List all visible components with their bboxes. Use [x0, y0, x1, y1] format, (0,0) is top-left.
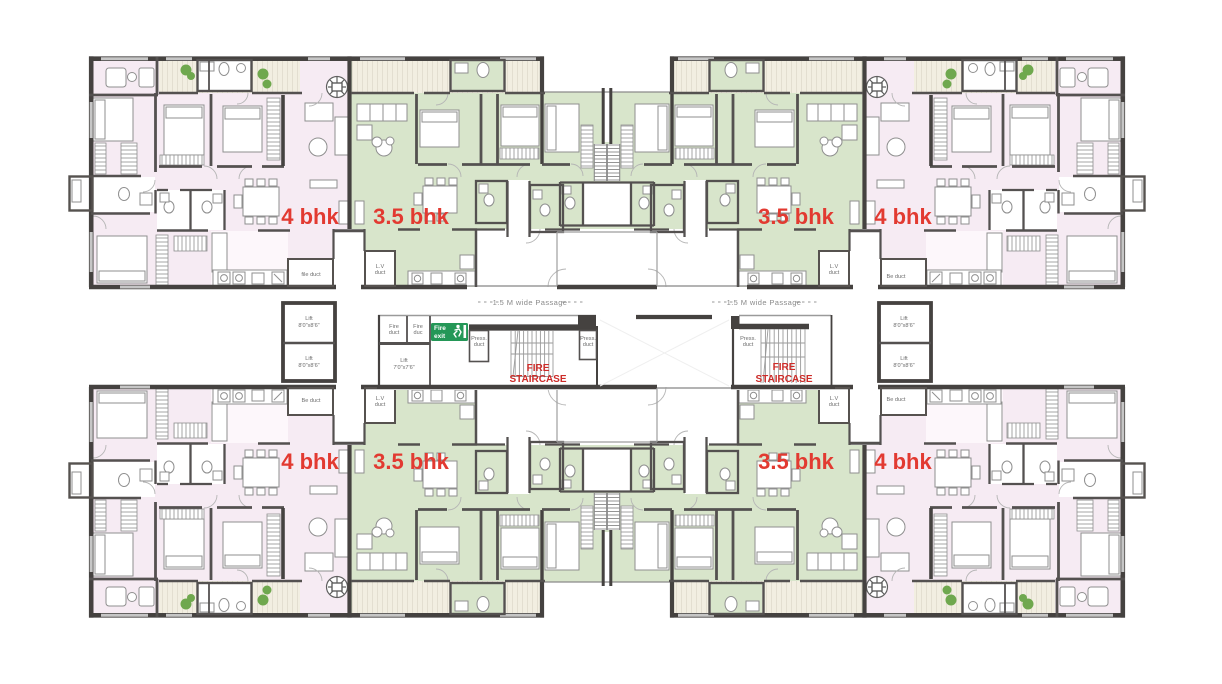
svg-text:1.5 M wide Passage: 1.5 M wide Passage — [493, 298, 568, 307]
svg-text:8'0"x8'6": 8'0"x8'6" — [893, 363, 914, 369]
svg-text:4 bhk: 4 bhk — [874, 449, 932, 474]
svg-text:FIRE: FIRE — [527, 363, 550, 374]
svg-text:3.5 bhk: 3.5 bhk — [758, 204, 835, 229]
svg-text:Be duct: Be duct — [887, 274, 906, 280]
svg-text:8'0"x8'6": 8'0"x8'6" — [298, 363, 319, 369]
svg-text:8'0"x8'6": 8'0"x8'6" — [298, 323, 319, 329]
svg-text:4 bhk: 4 bhk — [281, 449, 339, 474]
svg-text:7'0"x7'6": 7'0"x7'6" — [393, 365, 414, 371]
svg-text:3.5 bhk: 3.5 bhk — [373, 449, 450, 474]
svg-text:duct: duct — [375, 402, 386, 408]
svg-text:Lift: Lift — [305, 356, 313, 362]
svg-text:Lift: Lift — [900, 316, 908, 322]
svg-text:Lift: Lift — [400, 358, 408, 364]
svg-text:1.5 M wide Passage: 1.5 M wide Passage — [727, 298, 802, 307]
svg-text:3.5 bhk: 3.5 bhk — [758, 449, 835, 474]
svg-text:3.5 bhk: 3.5 bhk — [373, 204, 450, 229]
svg-text:exit: exit — [434, 333, 446, 340]
svg-text:FIRE: FIRE — [773, 362, 796, 373]
svg-text:duct: duct — [474, 342, 485, 348]
svg-text:4 bhk: 4 bhk — [281, 204, 339, 229]
svg-text:file duct: file duct — [301, 272, 321, 278]
svg-text:STAIRCASE: STAIRCASE — [509, 374, 566, 385]
svg-text:duct: duct — [829, 402, 840, 408]
svg-text:duct: duct — [375, 270, 386, 276]
svg-text:Be duct: Be duct — [302, 398, 321, 404]
svg-text:duc: duc — [413, 330, 422, 336]
svg-text:duct: duct — [389, 330, 400, 336]
svg-text:Be duct: Be duct — [887, 397, 906, 403]
svg-text:Fire: Fire — [434, 325, 446, 332]
svg-text:STAIRCASE: STAIRCASE — [755, 374, 812, 385]
svg-text:8'0"x8'6": 8'0"x8'6" — [893, 323, 914, 329]
svg-text:Lift: Lift — [305, 316, 313, 322]
svg-text:Lift: Lift — [900, 356, 908, 362]
svg-text:duct: duct — [583, 342, 594, 348]
svg-text:4 bhk: 4 bhk — [874, 204, 932, 229]
svg-text:duct: duct — [829, 270, 840, 276]
svg-text:duct: duct — [743, 342, 754, 348]
